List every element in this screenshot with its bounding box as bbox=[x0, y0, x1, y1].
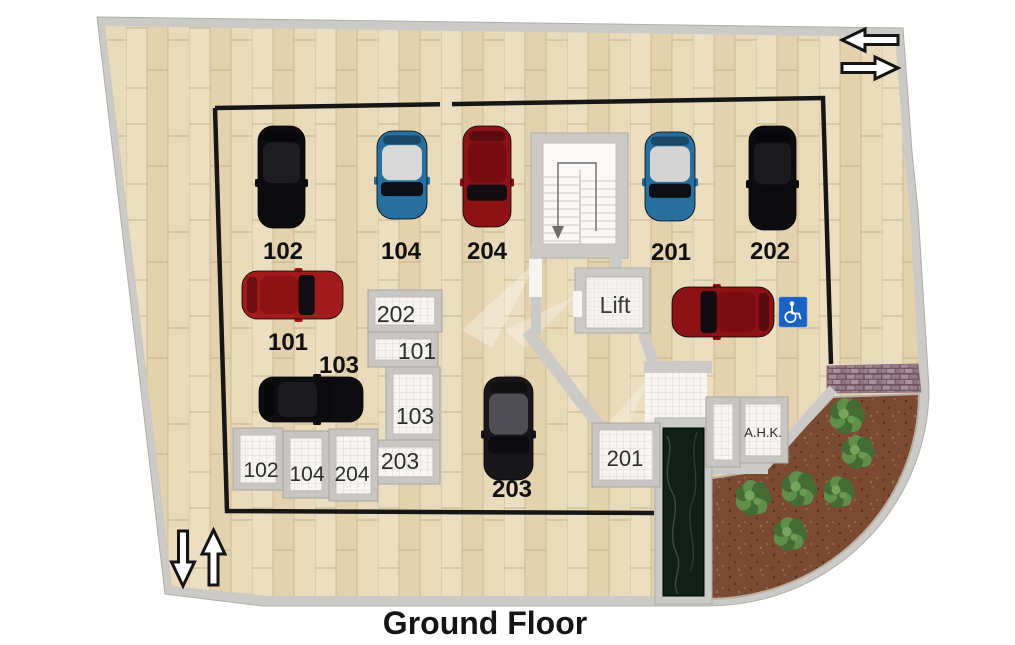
storage-room-102: 102 bbox=[233, 428, 283, 490]
storage-room-202: 202 bbox=[368, 290, 442, 332]
parking-label-201: 201 bbox=[651, 239, 691, 266]
car-202 bbox=[746, 126, 799, 230]
storage-room-unlabeled bbox=[706, 397, 740, 467]
storage-room-203: 203 bbox=[371, 440, 440, 484]
room-label-104: 104 bbox=[289, 463, 324, 486]
tiled-paving bbox=[827, 364, 921, 393]
car-104 bbox=[374, 131, 430, 219]
staircase bbox=[531, 133, 628, 258]
floor-plan-page: Lift 202101103203102104204201A.H.K. 1021… bbox=[0, 0, 1015, 645]
car-204 bbox=[460, 126, 514, 227]
room-label-202: 202 bbox=[377, 301, 415, 327]
car-101 bbox=[242, 268, 343, 322]
storage-room-101: 101 bbox=[368, 332, 438, 367]
parking-label-102: 102 bbox=[263, 238, 303, 265]
room-label-204: 204 bbox=[334, 463, 369, 486]
room-label-103: 103 bbox=[396, 403, 434, 429]
storage-room-103: 103 bbox=[386, 367, 440, 441]
wheelchair-icon bbox=[779, 297, 807, 327]
parking-label-204: 204 bbox=[467, 238, 508, 265]
room-label-203: 203 bbox=[381, 448, 419, 474]
car-102 bbox=[255, 126, 308, 228]
car-103 bbox=[259, 374, 363, 425]
parking-label-103: 103 bbox=[319, 352, 359, 379]
storage-room-104: 104 bbox=[283, 431, 329, 498]
floor-plan-drawing: Lift 202101103203102104204201A.H.K. 1021… bbox=[0, 0, 1015, 645]
marble-strip bbox=[655, 418, 712, 604]
lift-label: Lift bbox=[600, 292, 631, 318]
parking-label-202: 202 bbox=[750, 238, 790, 265]
parking-label-101: 101 bbox=[268, 329, 308, 356]
storage-room-A.H.K.: A.H.K. bbox=[738, 397, 788, 463]
parking-label-104: 104 bbox=[381, 238, 422, 265]
page-title: Ground Floor bbox=[383, 605, 587, 641]
parking-label-203: 203 bbox=[492, 476, 532, 503]
room-label-101: 101 bbox=[398, 338, 436, 364]
room-label-201: 201 bbox=[607, 446, 644, 471]
car-203 bbox=[481, 377, 536, 480]
room-label-A.H.K.: A.H.K. bbox=[744, 425, 782, 440]
car-201 bbox=[642, 132, 698, 221]
storage-room-201: 201 bbox=[592, 423, 660, 487]
storage-room-204: 204 bbox=[329, 429, 378, 501]
car-accessible-spot bbox=[672, 284, 774, 340]
room-label-102: 102 bbox=[243, 459, 278, 482]
lift: Lift bbox=[573, 268, 650, 333]
